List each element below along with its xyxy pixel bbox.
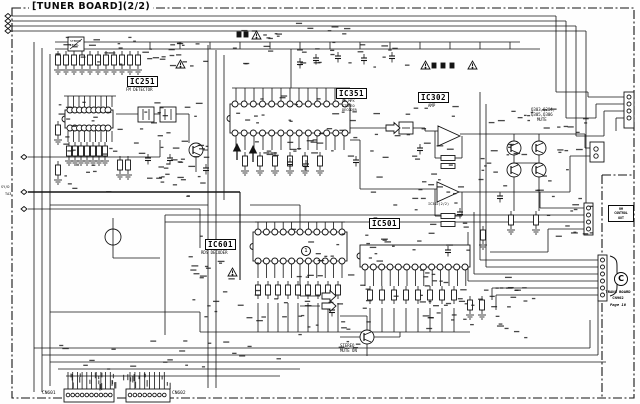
tuner-board-schematic: [TUNER BOARD](2/2) IC251 FM DETECTOR IC3… <box>0 0 640 404</box>
ic302-label: IC302 <box>418 92 449 103</box>
schematic-canvas <box>0 0 640 404</box>
offpage-circle-c: C <box>614 272 628 286</box>
ic501-label: IC501 <box>369 218 400 229</box>
offpage-page-ref: Page 10 <box>596 302 640 307</box>
ic302-half2-label: IC302(2/2) <box>428 203 449 207</box>
offpage-board-name: TRANS BOARD <box>596 289 640 294</box>
ic601-pin1-marker: 1 <box>301 246 311 256</box>
rm-control-out-box: RM CONTROL OUT <box>608 205 634 222</box>
ic601-sublabel: RDS DECODER <box>201 251 228 255</box>
mute-transistor-group-label-3: MUTE <box>537 118 547 122</box>
edge-terminals <box>5 14 27 212</box>
connector-right-label: CN602 <box>172 392 186 397</box>
ic251-label: IC251 <box>127 76 158 87</box>
ic351-label: IC351 <box>336 88 367 99</box>
left-edge-label-2: TA3 <box>5 193 11 197</box>
left-edge-label-1: SY/D <box>1 186 9 190</box>
rm-control-out-line-3: OUT <box>609 216 633 220</box>
board-title: [TUNER BOARD](2/2) <box>29 2 153 12</box>
connectors <box>64 92 634 402</box>
offpage-connector-ref: CN902 <box>596 295 640 300</box>
board-boundary-chain-border <box>12 8 634 398</box>
ceramic-filters <box>138 107 176 122</box>
stereo-mute-label-2: MUTE ON <box>340 349 357 353</box>
tuning-coil <box>105 229 121 245</box>
connector-left-label: CN601 <box>42 392 56 397</box>
ic302-sublabel: AMP <box>428 104 435 108</box>
ic351-sublabel-3: DECODER <box>342 109 357 113</box>
ic251-sublabel: FM DETECTOR <box>126 88 153 92</box>
level-trimmer-label-2: LEVEL <box>70 44 79 47</box>
transistors <box>189 141 546 344</box>
signal-arrows <box>234 123 401 312</box>
ic601-label: IC601 <box>205 239 236 250</box>
